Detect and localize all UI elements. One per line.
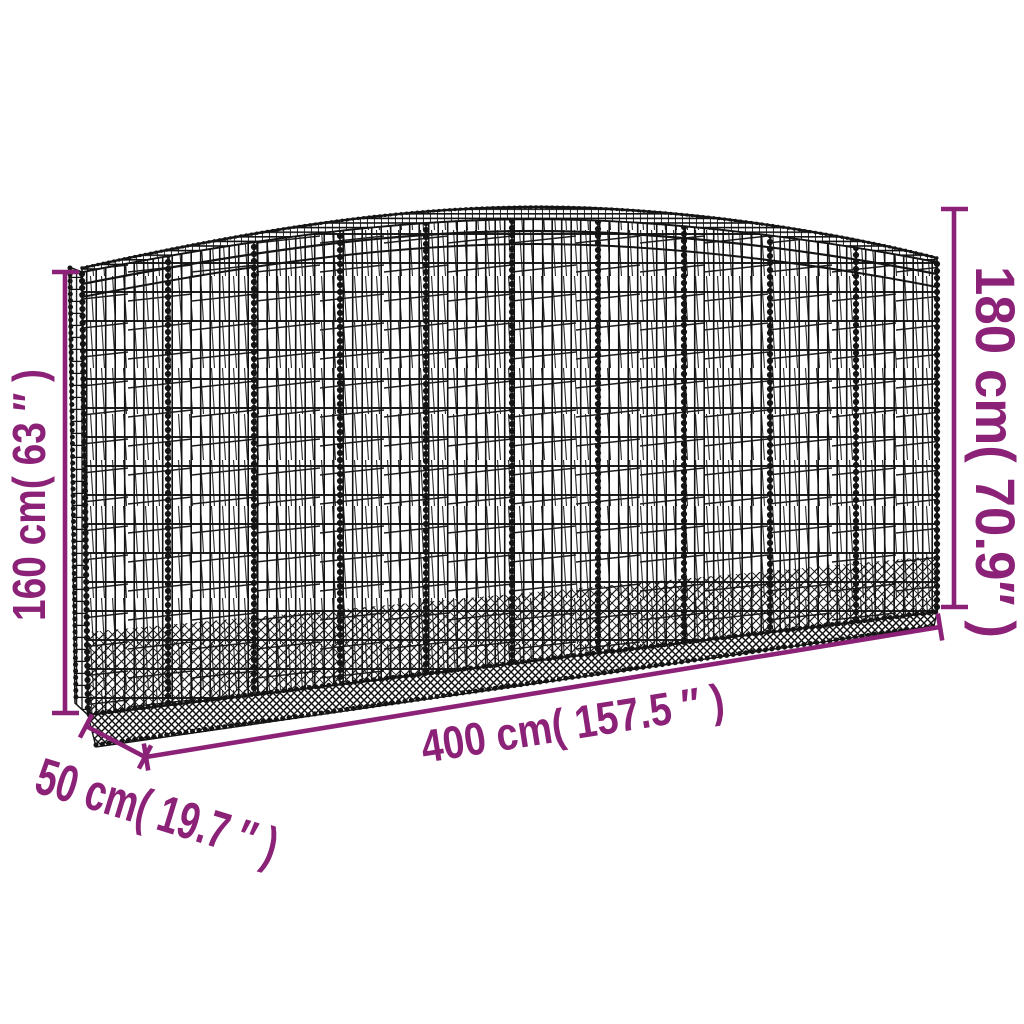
depth-label: 50 cm( 19.7 ″ )	[29, 747, 285, 876]
dimension-diagram: 160 cm( 63 ″ ) 180 cm( 70.9″ ) 400 cm( 1…	[0, 0, 1024, 1024]
side-height-label: 160 cm( 63 ″ )	[3, 369, 55, 621]
gabion-diagram-svg: 160 cm( 63 ″ ) 180 cm( 70.9″ ) 400 cm( 1…	[0, 0, 1024, 1024]
arch-height-label: 180 cm( 70.9″ )	[964, 266, 1024, 638]
gabion-basket	[69, 207, 937, 747]
side-height-dimension: 160 cm( 63 ″ )	[3, 272, 79, 713]
arch-height-dimension: 180 cm( 70.9″ )	[941, 209, 1024, 638]
